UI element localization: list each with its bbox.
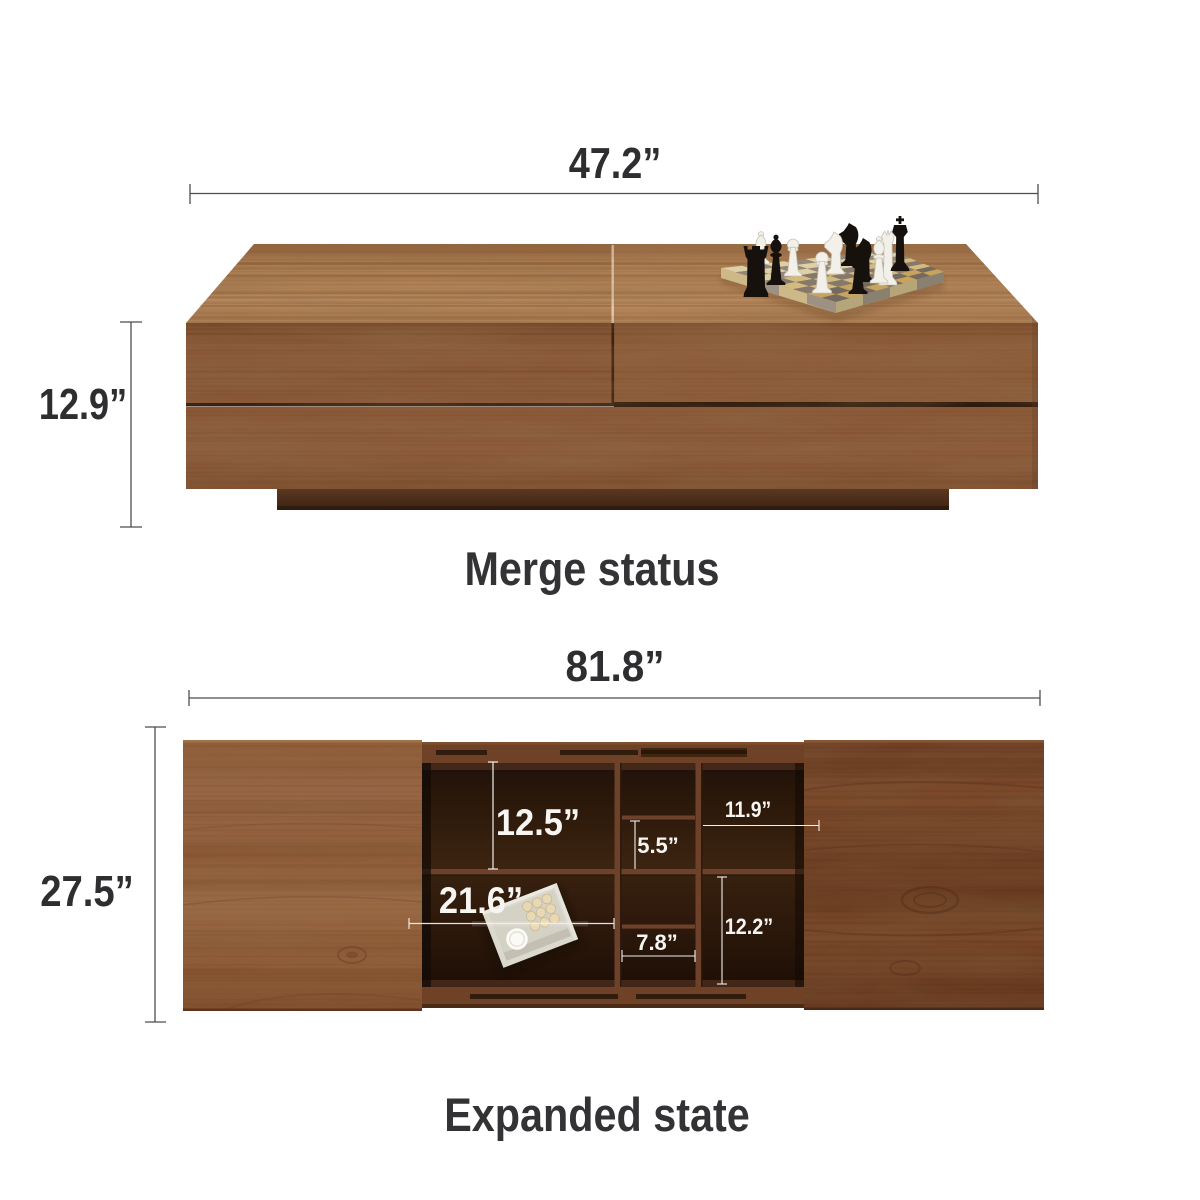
svg-text:12.5”: 12.5” [496, 802, 580, 843]
svg-text:7.8”: 7.8” [636, 930, 678, 955]
svg-text:12.9”: 12.9” [39, 380, 127, 429]
svg-text:Merge status: Merge status [464, 544, 719, 596]
svg-text:81.8”: 81.8” [565, 641, 664, 690]
svg-text:27.5”: 27.5” [40, 867, 134, 916]
svg-text:12.2”: 12.2” [725, 915, 773, 939]
svg-text:Expanded state: Expanded state [444, 1090, 750, 1142]
svg-text:21.6”: 21.6” [439, 880, 523, 921]
svg-text:5.5”: 5.5” [637, 833, 679, 858]
svg-text:11.9”: 11.9” [725, 798, 771, 822]
svg-text:47.2”: 47.2” [569, 138, 662, 187]
